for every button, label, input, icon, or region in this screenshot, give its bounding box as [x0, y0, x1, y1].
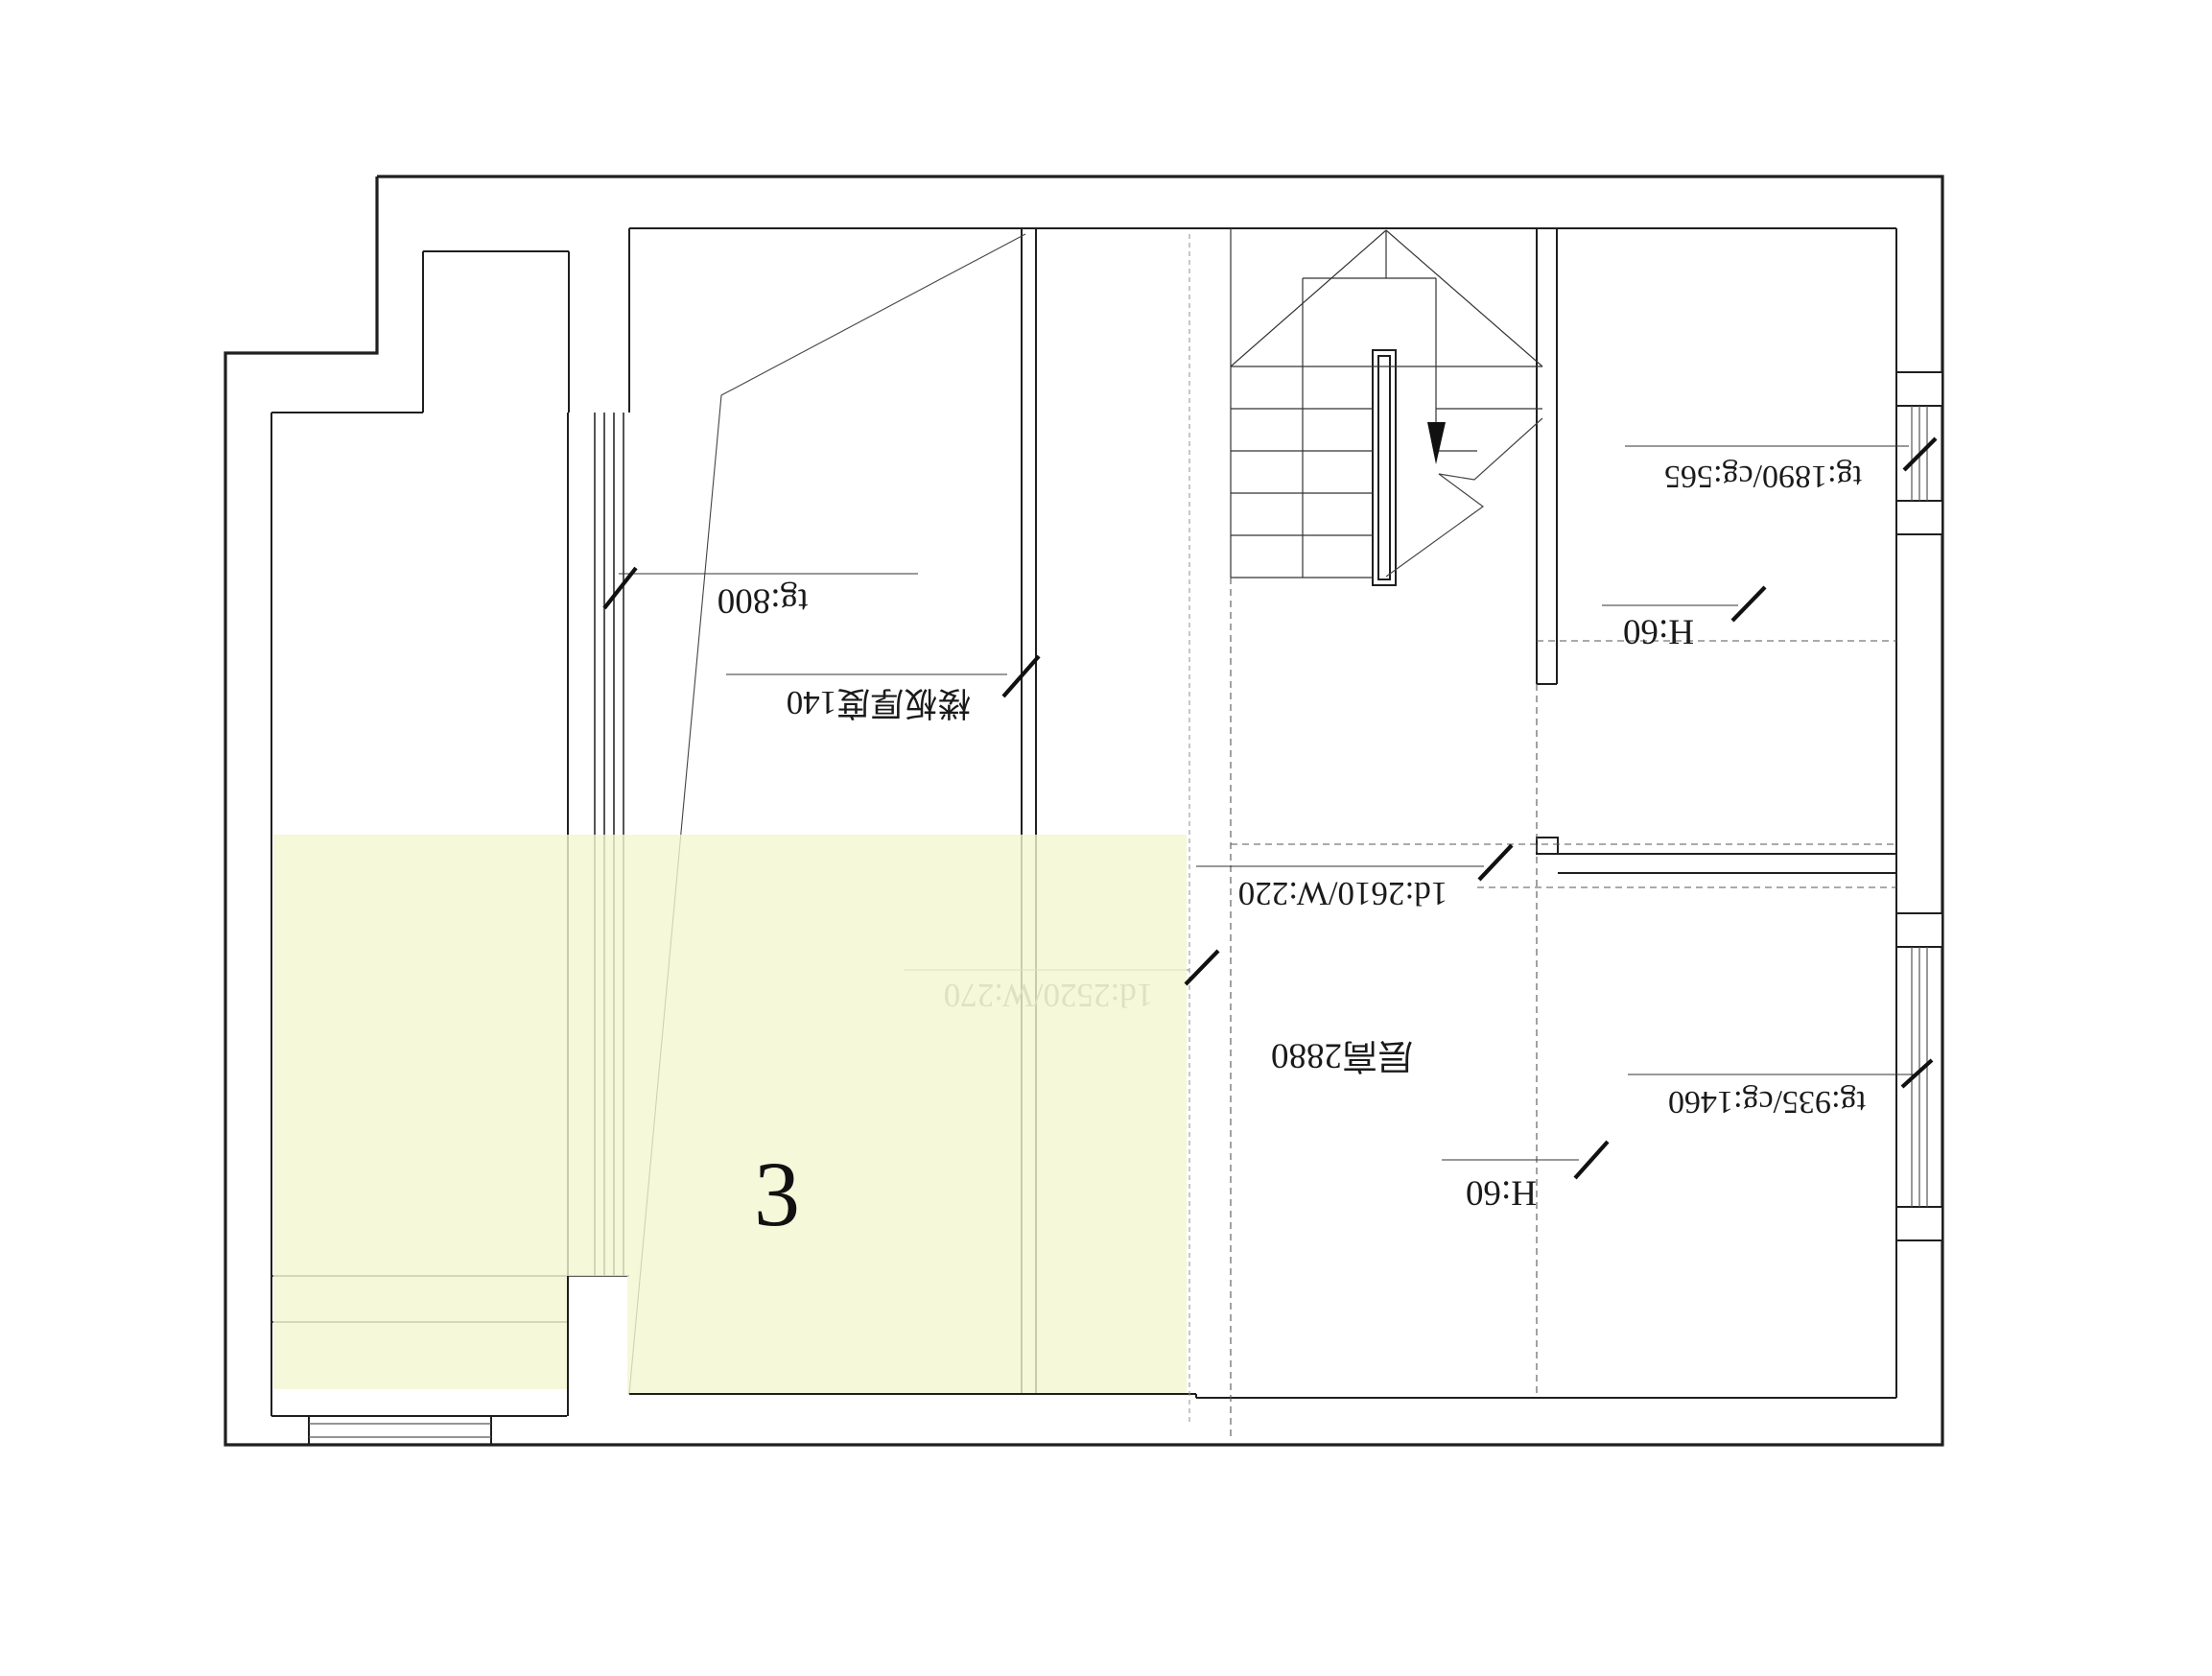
leader-tick-h-60-lower	[1575, 1142, 1608, 1178]
floor-plan-page: 1d:2520/W:270 tg:800楼板厚度1401d:2610/W:220…	[0, 0, 2212, 1676]
leader-tick-h-60-upper	[1732, 587, 1765, 621]
leader-tick-door-2610	[1479, 845, 1512, 880]
annotation-label-window-1890-565: tg:1890/cg:565	[1664, 459, 1862, 494]
stair-break-line	[1386, 418, 1542, 577]
annotation-label-h-60-upper: H:60	[1623, 612, 1694, 651]
annotation-label-h-60-lower: H:60	[1466, 1173, 1537, 1213]
annotation-label-floor-slab-140: 楼板厚度140	[787, 684, 972, 721]
wall-block	[1896, 501, 1942, 534]
wall-block	[1378, 356, 1390, 579]
annotation-label-door-2610: 1d:2610/W:220	[1238, 875, 1447, 912]
stair-line	[1386, 230, 1542, 366]
stair-down-arrow-icon	[1427, 422, 1446, 464]
room-number-label: 3	[754, 1143, 800, 1245]
room-highlight-layer	[273, 835, 1187, 1393]
floor-plan-canvas: 1d:2520/W:270 tg:800楼板厚度1401d:2610/W:220…	[0, 0, 2212, 1676]
annotation-label-ceiling-height-2880: 层高2880	[1271, 1036, 1413, 1076]
stair-line	[1231, 230, 1386, 366]
leader-tick-door-2520	[1186, 951, 1218, 984]
wall-block	[1896, 1207, 1942, 1240]
room-highlight-area	[273, 835, 1187, 1393]
annotation-label-window-935-1460: tg:935/cg:1460	[1668, 1084, 1866, 1120]
wall-block	[1896, 372, 1942, 406]
wall-block	[1537, 838, 1558, 854]
annotation-label-tg-800: tg:800	[718, 581, 809, 621]
wall-block	[1896, 913, 1942, 947]
